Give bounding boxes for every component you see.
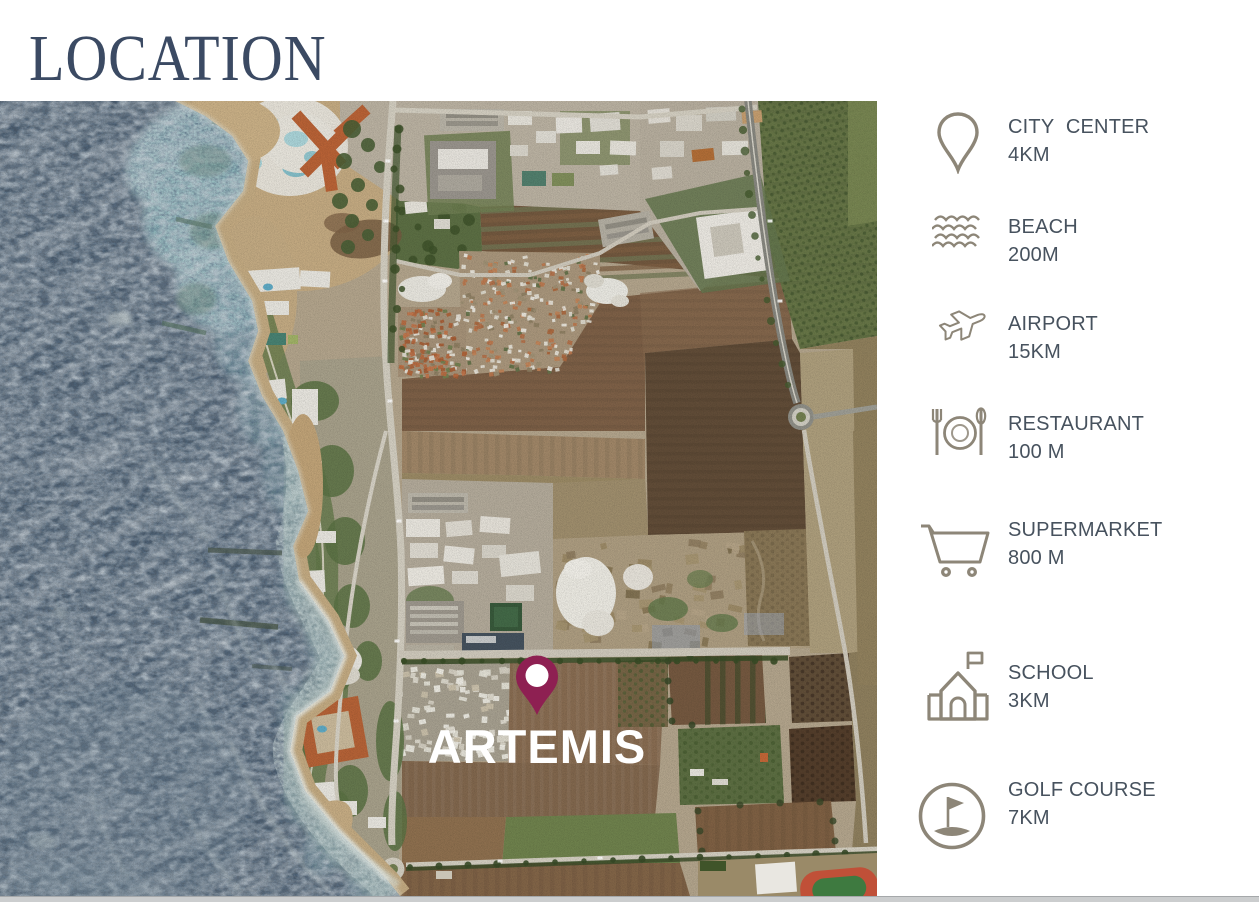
svg-text:ARTEMIS: ARTEMIS [428, 720, 647, 773]
